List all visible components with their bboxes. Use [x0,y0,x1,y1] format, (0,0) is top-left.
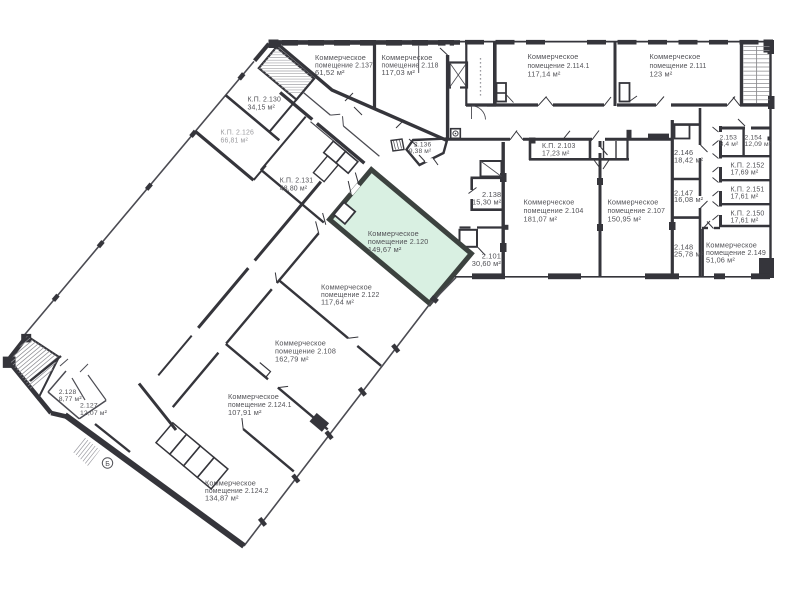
svg-text:2.1538,4 м²: 2.1538,4 м² [720,135,740,149]
svg-text:Б: Б [105,461,110,468]
